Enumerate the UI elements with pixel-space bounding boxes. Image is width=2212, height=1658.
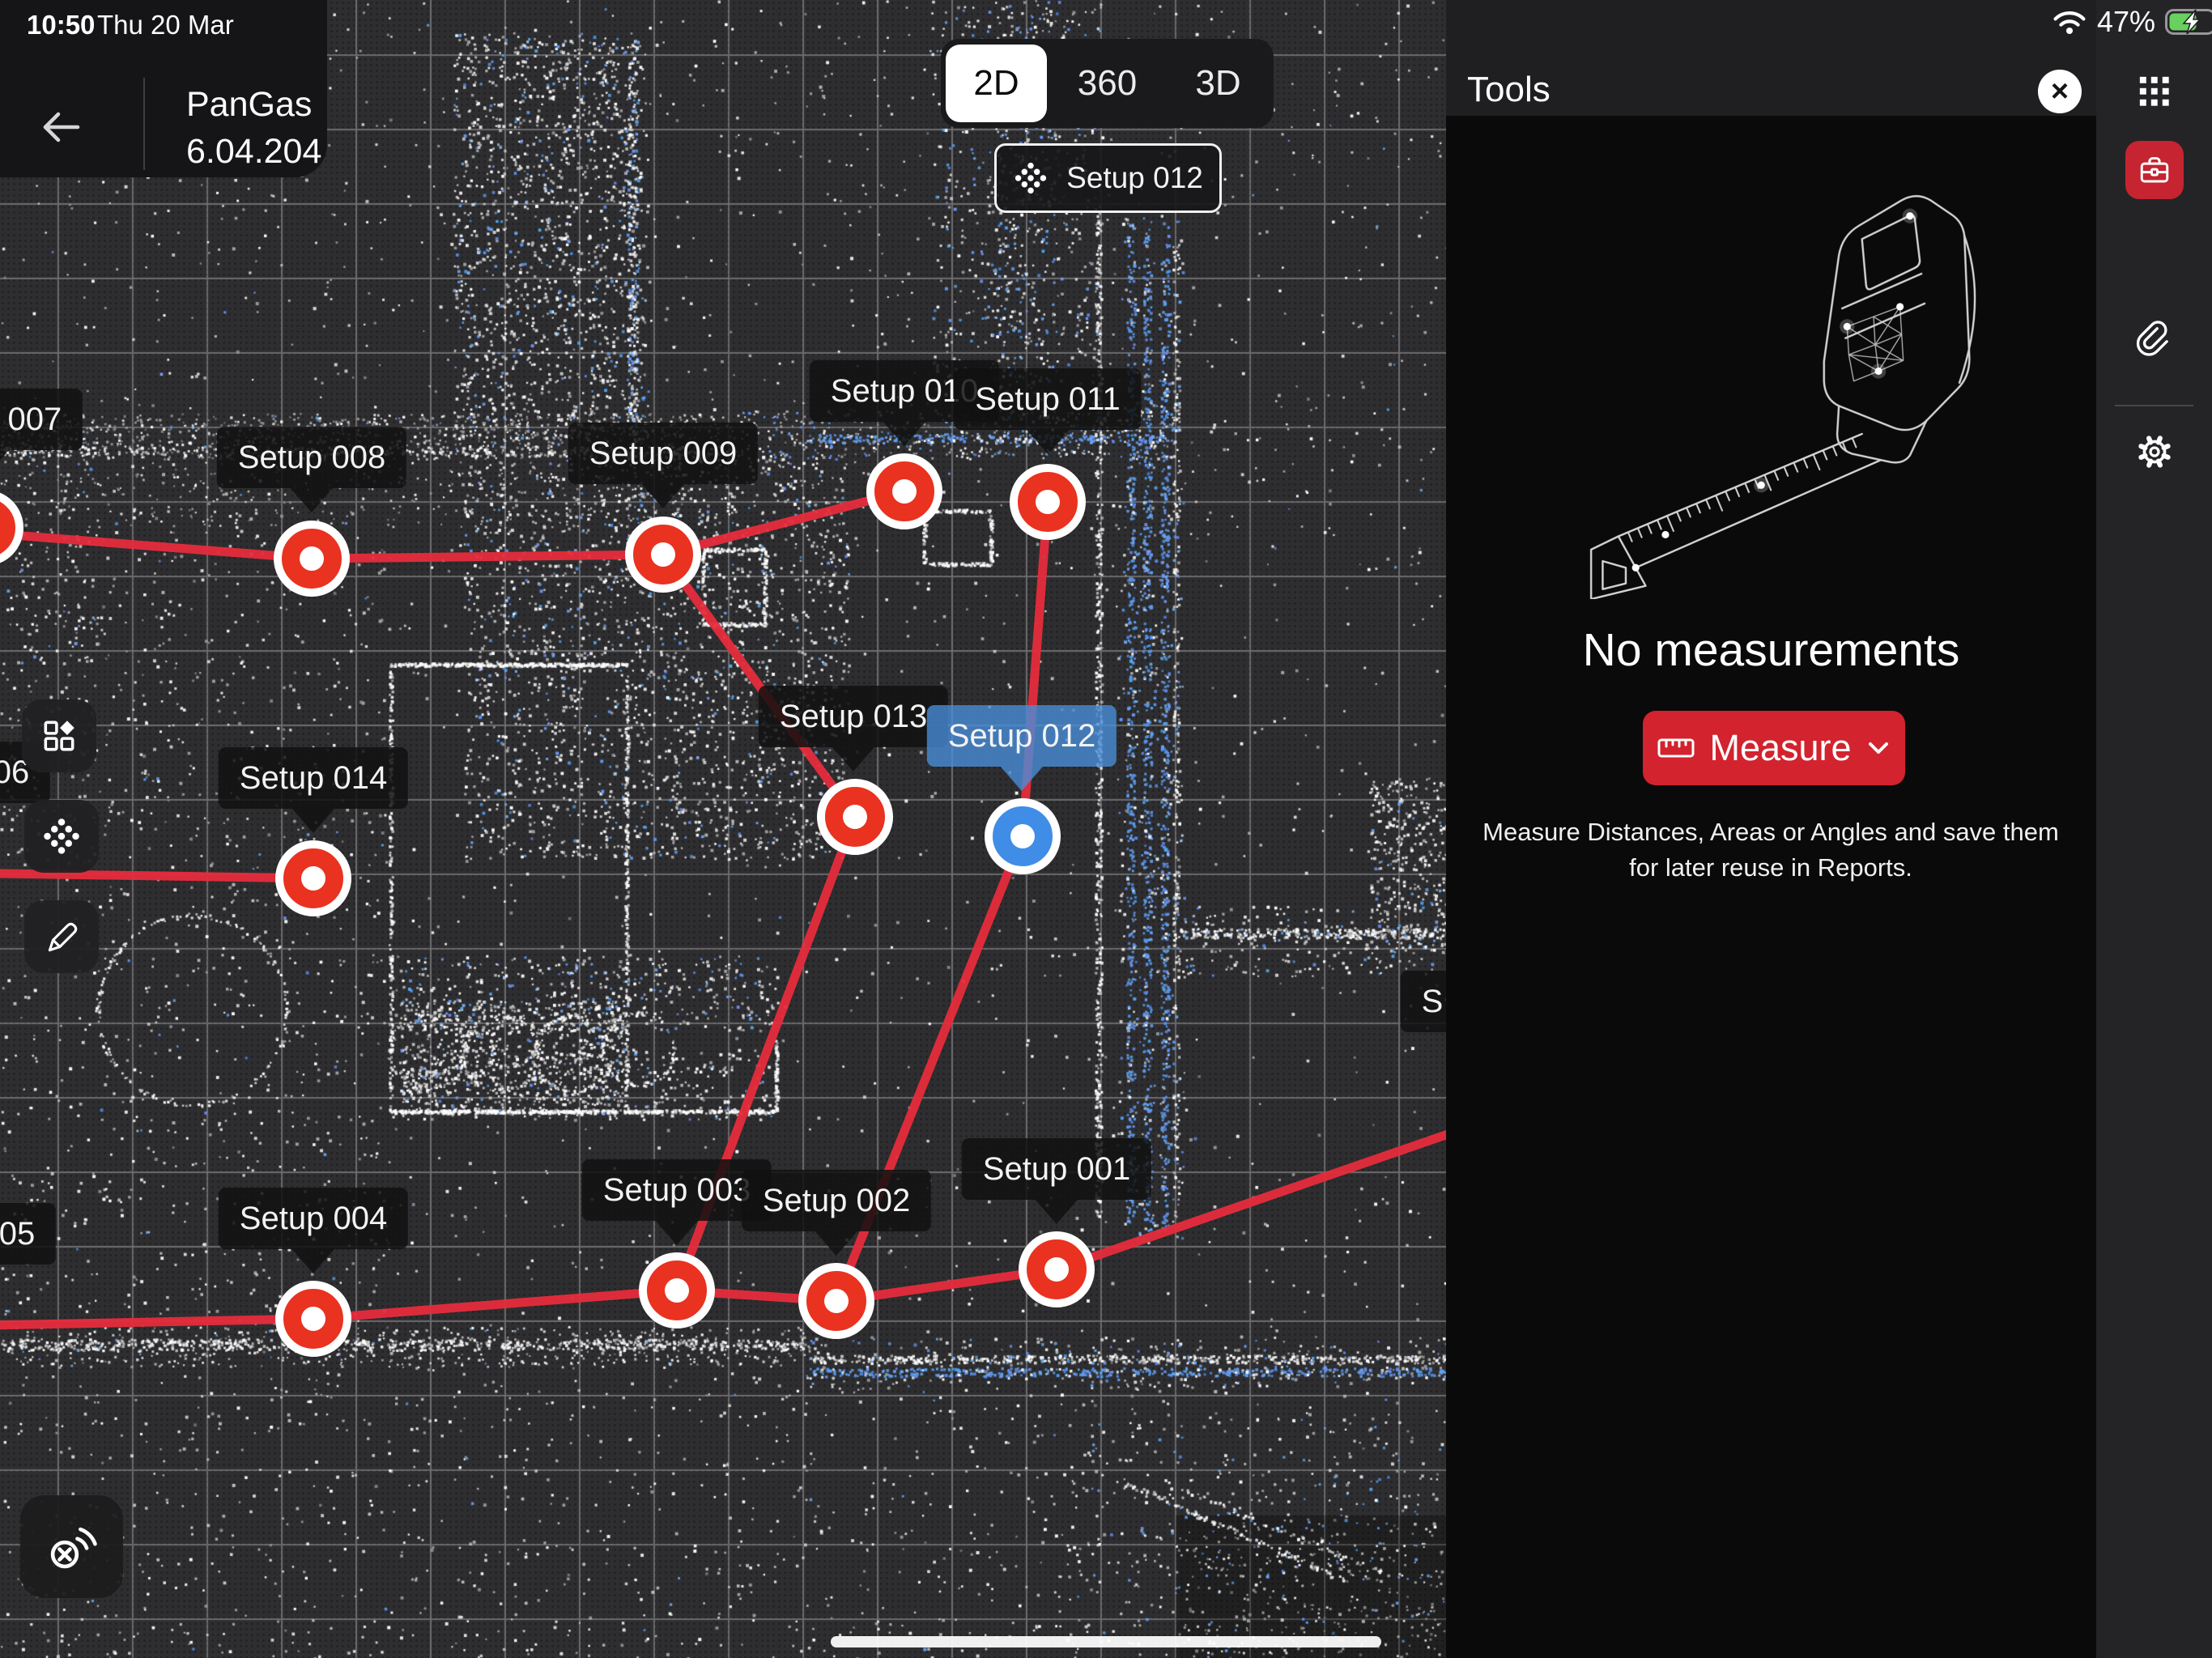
status-cluster: 47% [2052,5,2212,39]
battery-charging-icon [2165,8,2212,36]
point-cloud-map-view[interactable]: Setup 007Setup 008Setup 009Setup 010Setu… [0,0,1446,1658]
project-version: 6.04.204 [186,128,321,175]
setup-label-013[interactable]: Setup 013 [759,686,948,747]
project-title: PanGas 6.04.204 [186,81,321,175]
divider [143,78,145,170]
setup-label-002[interactable]: Setup 002 [742,1170,931,1231]
setup-label-011[interactable]: Setup 011 [954,368,1141,430]
sidebar-item-toolbox[interactable] [2096,133,2212,207]
scanner-disconnected-icon [47,1522,97,1572]
battery-percent: 47% [2097,5,2155,39]
app-grid-icon [2138,75,2171,108]
status-time: 10:50 [27,10,95,40]
setup-label-001[interactable]: Setup 001 [962,1138,1151,1200]
close-panel-button[interactable]: × [2038,70,2082,113]
setup-marker-012[interactable] [985,798,1061,874]
active-setup-button[interactable]: Setup 012 [994,143,1222,213]
shapes-diamond-icon [40,716,79,755]
wifi-icon [2052,8,2087,36]
sidebar-item-scanner-disconnected[interactable] [2096,221,2212,295]
chevron-down-icon [1866,739,1891,757]
view-mode-switcher: 2D 360 3D [941,39,1274,128]
gear-icon [2135,432,2174,471]
measure-button-label: Measure [1709,727,1851,769]
pen-icon [42,917,81,956]
paperclip-icon [2135,320,2174,359]
tab-2d[interactable]: 2D [946,45,1047,122]
setup-marker-014[interactable] [275,840,351,916]
active-tool-highlight [2125,141,2184,199]
tools-panel: Tools × [1446,0,2096,1658]
panel-title: Tools [1467,70,1551,110]
setup-label-012[interactable]: Setup 012 [927,705,1117,767]
ruler-icon [1657,734,1695,762]
active-setup-label: Setup 012 [1066,161,1203,195]
scanner-connection-button[interactable] [20,1495,123,1598]
empty-state-description: Measure Distances, Areas or Angles and s… [1471,814,2070,886]
tab-3d[interactable]: 3D [1168,45,1269,122]
sidebar-item-settings[interactable] [2096,414,2212,489]
setup-label-007[interactable]: Setup 007 [0,389,83,450]
setup-marker-008[interactable] [274,521,350,597]
setup-marker-010[interactable] [866,453,942,529]
setups-tool-button[interactable] [24,800,99,873]
setup-marker-002[interactable] [798,1263,874,1339]
draw-tool-button[interactable] [24,900,99,973]
arrow-left-icon [36,102,86,152]
setup-path [0,873,313,878]
home-indicator[interactable] [831,1636,1381,1647]
setup-dots-icon [1013,160,1049,196]
setup-label-014[interactable]: Setup 014 [219,747,408,809]
measure-button[interactable]: Measure [1643,711,1905,785]
setup-path-lines [0,0,1446,1658]
project-name: PanGas [186,81,321,128]
setup-marker-003[interactable] [639,1252,715,1329]
setup-path [0,491,904,559]
setup-label-008[interactable]: Setup 008 [217,427,406,488]
back-button[interactable] [36,102,86,152]
setup-marker-004[interactable] [275,1281,351,1357]
sidebar-item-apps[interactable] [2096,54,2212,129]
tab-360[interactable]: 360 [1057,45,1158,122]
setup-marker-009[interactable] [625,517,701,593]
toolbox-icon [2138,153,2172,187]
field360-app: Setup 007Setup 008Setup 009Setup 010Setu… [0,0,2212,1658]
divider [2115,405,2193,406]
setup-marker-011[interactable] [1010,464,1086,540]
setup-label-004[interactable]: Setup 004 [219,1188,408,1249]
setup-label-005[interactable]: Setup 005 [0,1203,56,1265]
setup-dots-icon [41,816,82,857]
setup-marker-001[interactable] [1019,1231,1095,1307]
empty-state-title: No measurements [1446,623,2096,677]
tools-panel-header: Tools × [1446,0,2096,116]
close-icon: × [2051,74,2069,109]
app-sidebar [2096,0,2212,1658]
tape-measure-illustration [1538,186,2004,599]
setup-marker-013[interactable] [817,779,893,855]
status-date: Thu 20 Mar [97,10,234,40]
setup-label-edge[interactable]: S [1401,971,1446,1032]
objects-tool-button[interactable] [22,699,96,772]
title-bar: 10:50 Thu 20 Mar PanGas 6.04.204 [0,0,327,177]
sidebar-item-attachments[interactable] [2096,302,2212,376]
setup-label-009[interactable]: Setup 009 [568,423,758,484]
